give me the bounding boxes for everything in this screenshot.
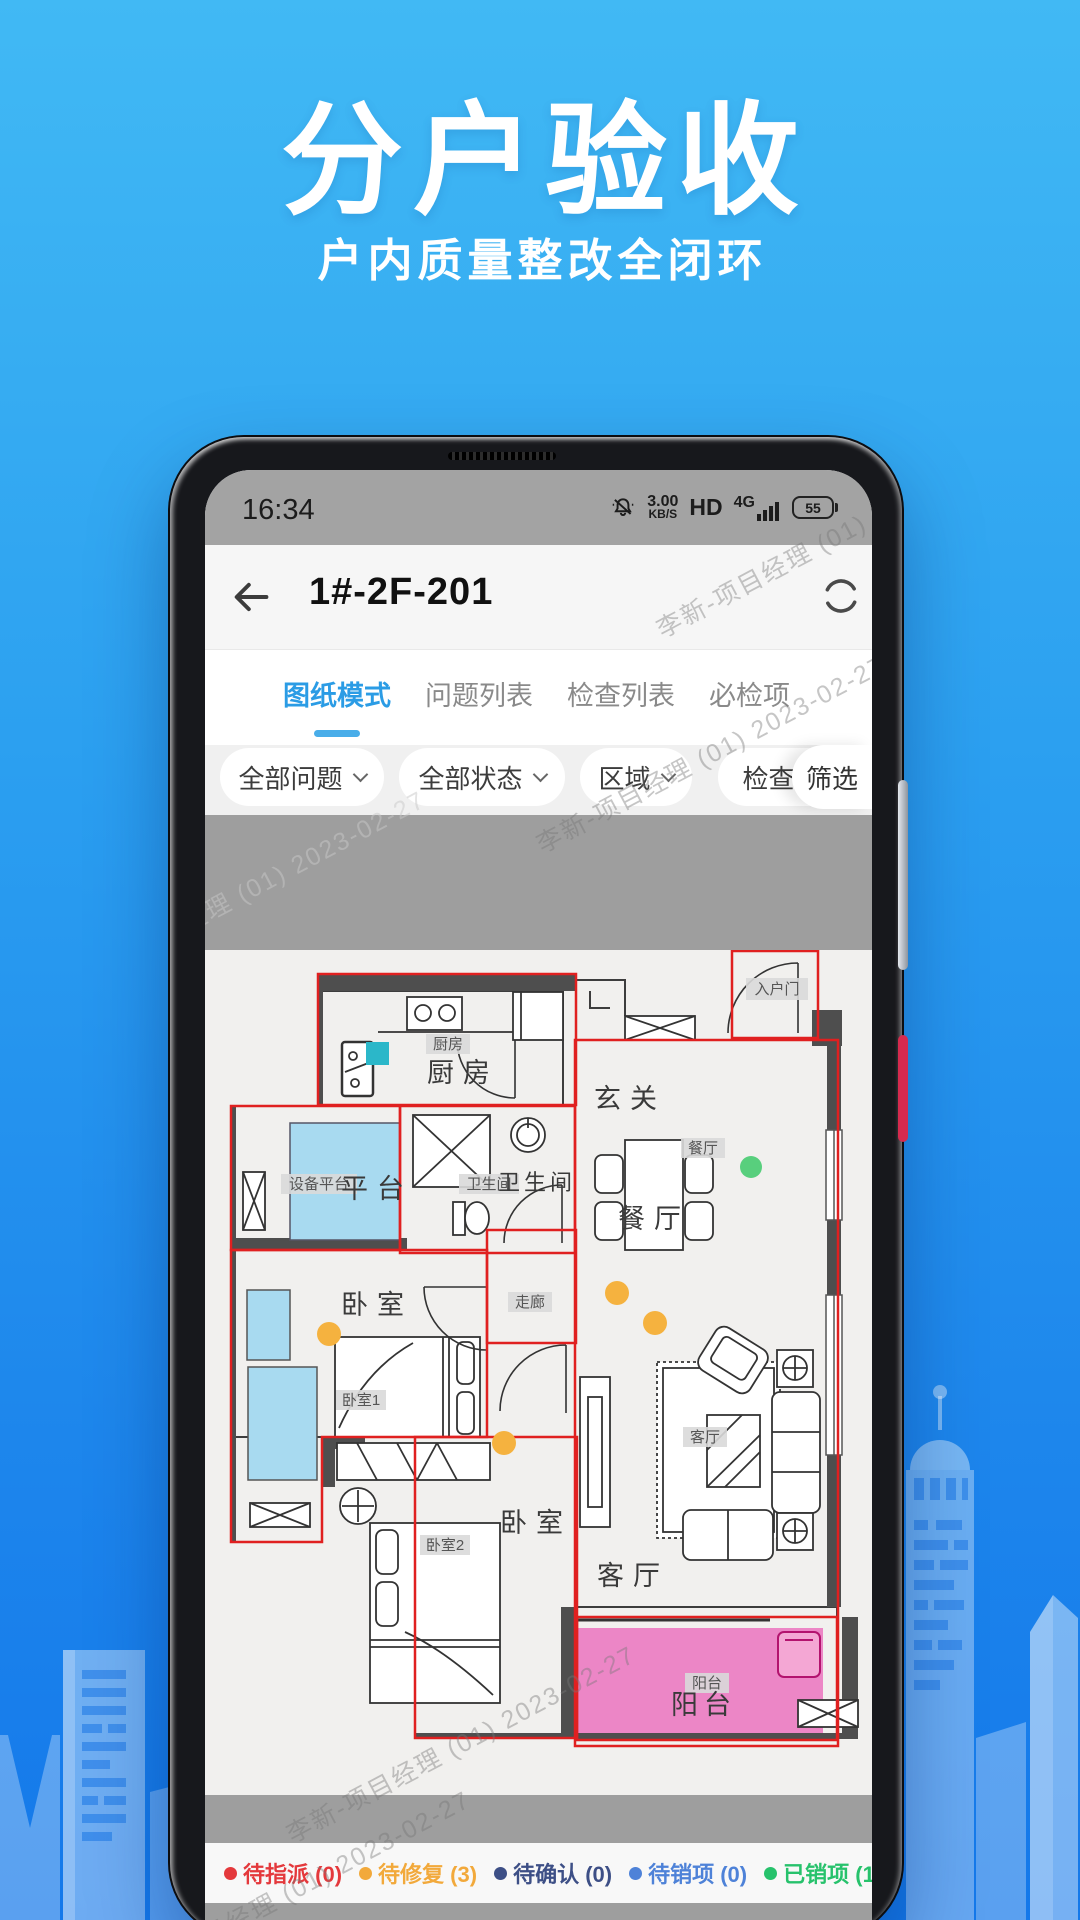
tag-bedroom1: 卧室1 — [342, 1392, 380, 1409]
issue-dot-bedroom2[interactable] — [492, 1431, 516, 1455]
tab-issue-list[interactable]: 问题列表 — [425, 650, 533, 745]
issue-dot-living-1[interactable] — [605, 1281, 629, 1305]
floorplan-canvas[interactable]: 厨房 入户门 餐厅 设备平台 卫生间 走廊 卧室1 — [205, 950, 872, 1795]
phone-volume-button — [898, 780, 908, 970]
tag-entry-door: 入户门 — [754, 981, 799, 998]
phone-mockup: 16:34 3.00 KB/S HD 4G — [170, 437, 902, 1920]
legend-item-closed: 已销项 (1) — [764, 1857, 872, 1889]
filter-button[interactable]: 筛选 — [792, 745, 872, 809]
app-screen: 16:34 3.00 KB/S HD 4G — [205, 470, 872, 1920]
zone-corridor[interactable] — [487, 1230, 576, 1343]
label-bedroom2: 卧室 — [500, 1508, 572, 1539]
status-time: 16:34 — [242, 494, 315, 527]
network-speed: 3.00 KB/S — [647, 494, 678, 521]
phone-speaker-icon — [448, 452, 556, 460]
issue-dot-living-2[interactable] — [643, 1311, 667, 1335]
tag-bedroom2: 卧室2 — [426, 1537, 464, 1554]
tab-required-items[interactable]: 必检项 — [709, 650, 790, 745]
filter-area[interactable]: 区域 — [580, 748, 692, 806]
viewer-gray-band-bottom — [205, 1903, 872, 1920]
mute-bell-icon — [610, 495, 636, 521]
legend-item-pending-fix: 待修复 (3) — [359, 1857, 477, 1889]
label-platform: 平台 — [341, 1174, 413, 1205]
legend-item-pending-assign: 待指派 (0) — [224, 1857, 342, 1889]
legend-dot — [224, 1867, 237, 1880]
legend-dot — [494, 1867, 507, 1880]
legend-item-pending-confirm: 待确认 (0) — [494, 1857, 612, 1889]
check-marker-kitchen[interactable] — [366, 1042, 389, 1065]
nav-bar: 1#-2F-201 — [205, 545, 872, 650]
page-subtitle: 户内质量整改全闭环 — [0, 224, 1080, 289]
status-legend: 待指派 (0) 待修复 (3) 待确认 (0) 待销项 (0) 已销项 (1) — [205, 1843, 872, 1903]
legend-dot — [764, 1867, 777, 1880]
signal-icon: 4G — [734, 494, 781, 522]
back-arrow-icon[interactable] — [229, 575, 273, 619]
label-living: 客厅 — [597, 1561, 669, 1592]
legend-dot — [359, 1867, 372, 1880]
tag-corridor: 走廊 — [515, 1294, 545, 1311]
tab-drawing-mode[interactable]: 图纸模式 — [283, 650, 391, 745]
viewer-gray-band-mid — [205, 1795, 872, 1843]
label-bedroom1: 卧室 — [341, 1290, 413, 1321]
tag-living: 客厅 — [690, 1429, 720, 1446]
unit-title: 1#-2F-201 — [309, 571, 493, 614]
filter-all-status[interactable]: 全部状态 — [399, 748, 565, 806]
label-balcony: 阳台 — [671, 1690, 737, 1721]
chevron-down-icon — [532, 767, 548, 783]
chevron-down-icon — [352, 767, 368, 783]
battery-icon: 55 — [792, 496, 834, 519]
legend-dot — [629, 1867, 642, 1880]
label-dining: 餐厅 — [618, 1204, 690, 1235]
tag-equipment-platform: 设备平台 — [289, 1176, 349, 1193]
filter-label: 区域 — [598, 759, 650, 796]
tag-kitchen: 厨房 — [433, 1036, 463, 1053]
status-bar: 16:34 3.00 KB/S HD 4G — [205, 470, 872, 545]
viewer-gray-band-top — [205, 815, 872, 950]
phone-power-button — [898, 1035, 908, 1142]
legend-item-pending-close: 待销项 (0) — [629, 1857, 747, 1889]
filter-label: 全部状态 — [418, 759, 522, 796]
page-title: 分户验收 — [0, 62, 1080, 239]
refresh-icon[interactable] — [818, 573, 864, 619]
issue-dot-closed-dining[interactable] — [740, 1156, 762, 1178]
bedroom2-furniture — [337, 1443, 500, 1703]
label-kitchen: 厨房 — [427, 1058, 499, 1089]
city-skyline-right-icon — [890, 1370, 1080, 1920]
network-type-label: 4G — [734, 494, 755, 512]
label-bathroom: 卫生间 — [498, 1171, 576, 1196]
filter-all-issues[interactable]: 全部问题 — [220, 748, 384, 806]
promo-page: 分户验收 户内质量整改全闭环 — [0, 0, 1080, 1920]
chevron-down-icon — [660, 767, 676, 783]
balcony-furniture — [778, 1632, 820, 1677]
floorplan-svg: 厨房 入户门 餐厅 设备平台 卫生间 走廊 卧室1 — [205, 950, 872, 1795]
tab-check-list[interactable]: 检查列表 — [567, 650, 675, 745]
hd-indicator: HD — [689, 494, 722, 521]
filter-label: 全部问题 — [238, 759, 342, 796]
label-foyer: 玄关 — [594, 1084, 666, 1115]
tag-dining: 餐厅 — [688, 1140, 718, 1157]
issue-dot-bedroom1[interactable] — [317, 1322, 341, 1346]
platform-furniture — [243, 1172, 265, 1230]
foyer-furniture — [625, 1016, 695, 1040]
filter-row: 全部问题 全部状态 区域 检查项 筛选 — [205, 745, 872, 815]
tab-bar: 图纸模式 问题列表 检查列表 必检项 — [205, 650, 872, 745]
